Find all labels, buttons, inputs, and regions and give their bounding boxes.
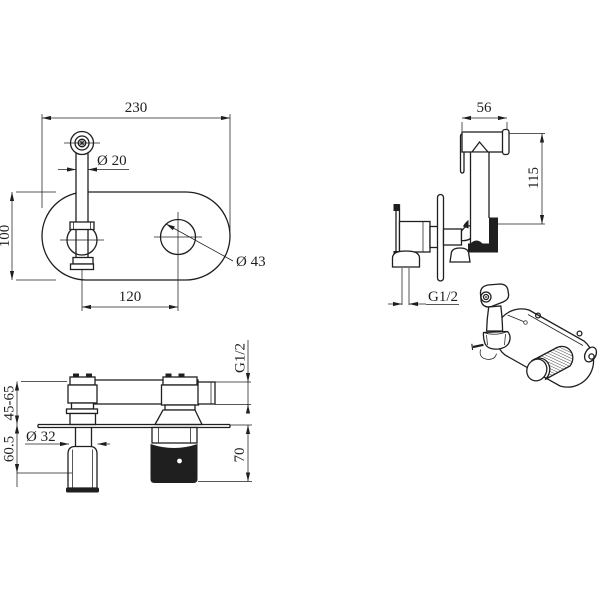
view-mixer-side: G1/2 45-65 60.5 Ø 32 70 [2,340,253,493]
view-sprayer-side: 56 115 G1/2 [388,100,545,305]
view-plate-front: 230 Ø 20 100 Ø 43 120 [0,100,266,311]
dim-handle-drop: 70 [232,448,248,463]
dim-plate-height: 100 [0,225,13,248]
dim-hole-diameter: Ø 43 [236,254,266,270]
drawing-canvas: 230 Ø 20 100 Ø 43 120 [0,0,600,600]
dim-spout-end-diameter: Ø 32 [26,429,56,445]
iso-hook [480,350,496,360]
iso-screw [577,331,582,336]
dim-outlet-thread-top: G1/2 [428,289,458,305]
dim-spout-diameter: Ø 20 [97,153,127,169]
escutcheon-edge [438,195,444,282]
dim-plate-width: 230 [125,100,148,116]
outlet-nut [393,251,420,267]
sprayer-head-cap [503,130,510,155]
dim-hole-spacing: 120 [119,289,142,305]
outlet-spigot [198,382,215,404]
dim-spout-drop: 60.5 [2,436,18,462]
iso-sprayer-body [487,306,503,331]
left-valve [68,385,97,403]
view-isometric [472,284,599,387]
dim-depth-range: 45-65 [2,386,18,421]
valve-body [400,222,431,253]
dim-sprayer-height: 115 [526,167,542,189]
dim-head-width: 56 [477,100,493,116]
sprayer-head [462,132,503,152]
lever-handle [151,444,198,483]
technical-drawing: 230 Ø 20 100 Ø 43 120 [0,0,600,600]
right-valve [162,385,199,405]
dim-outlet-thread-right: G1/2 [233,343,249,373]
